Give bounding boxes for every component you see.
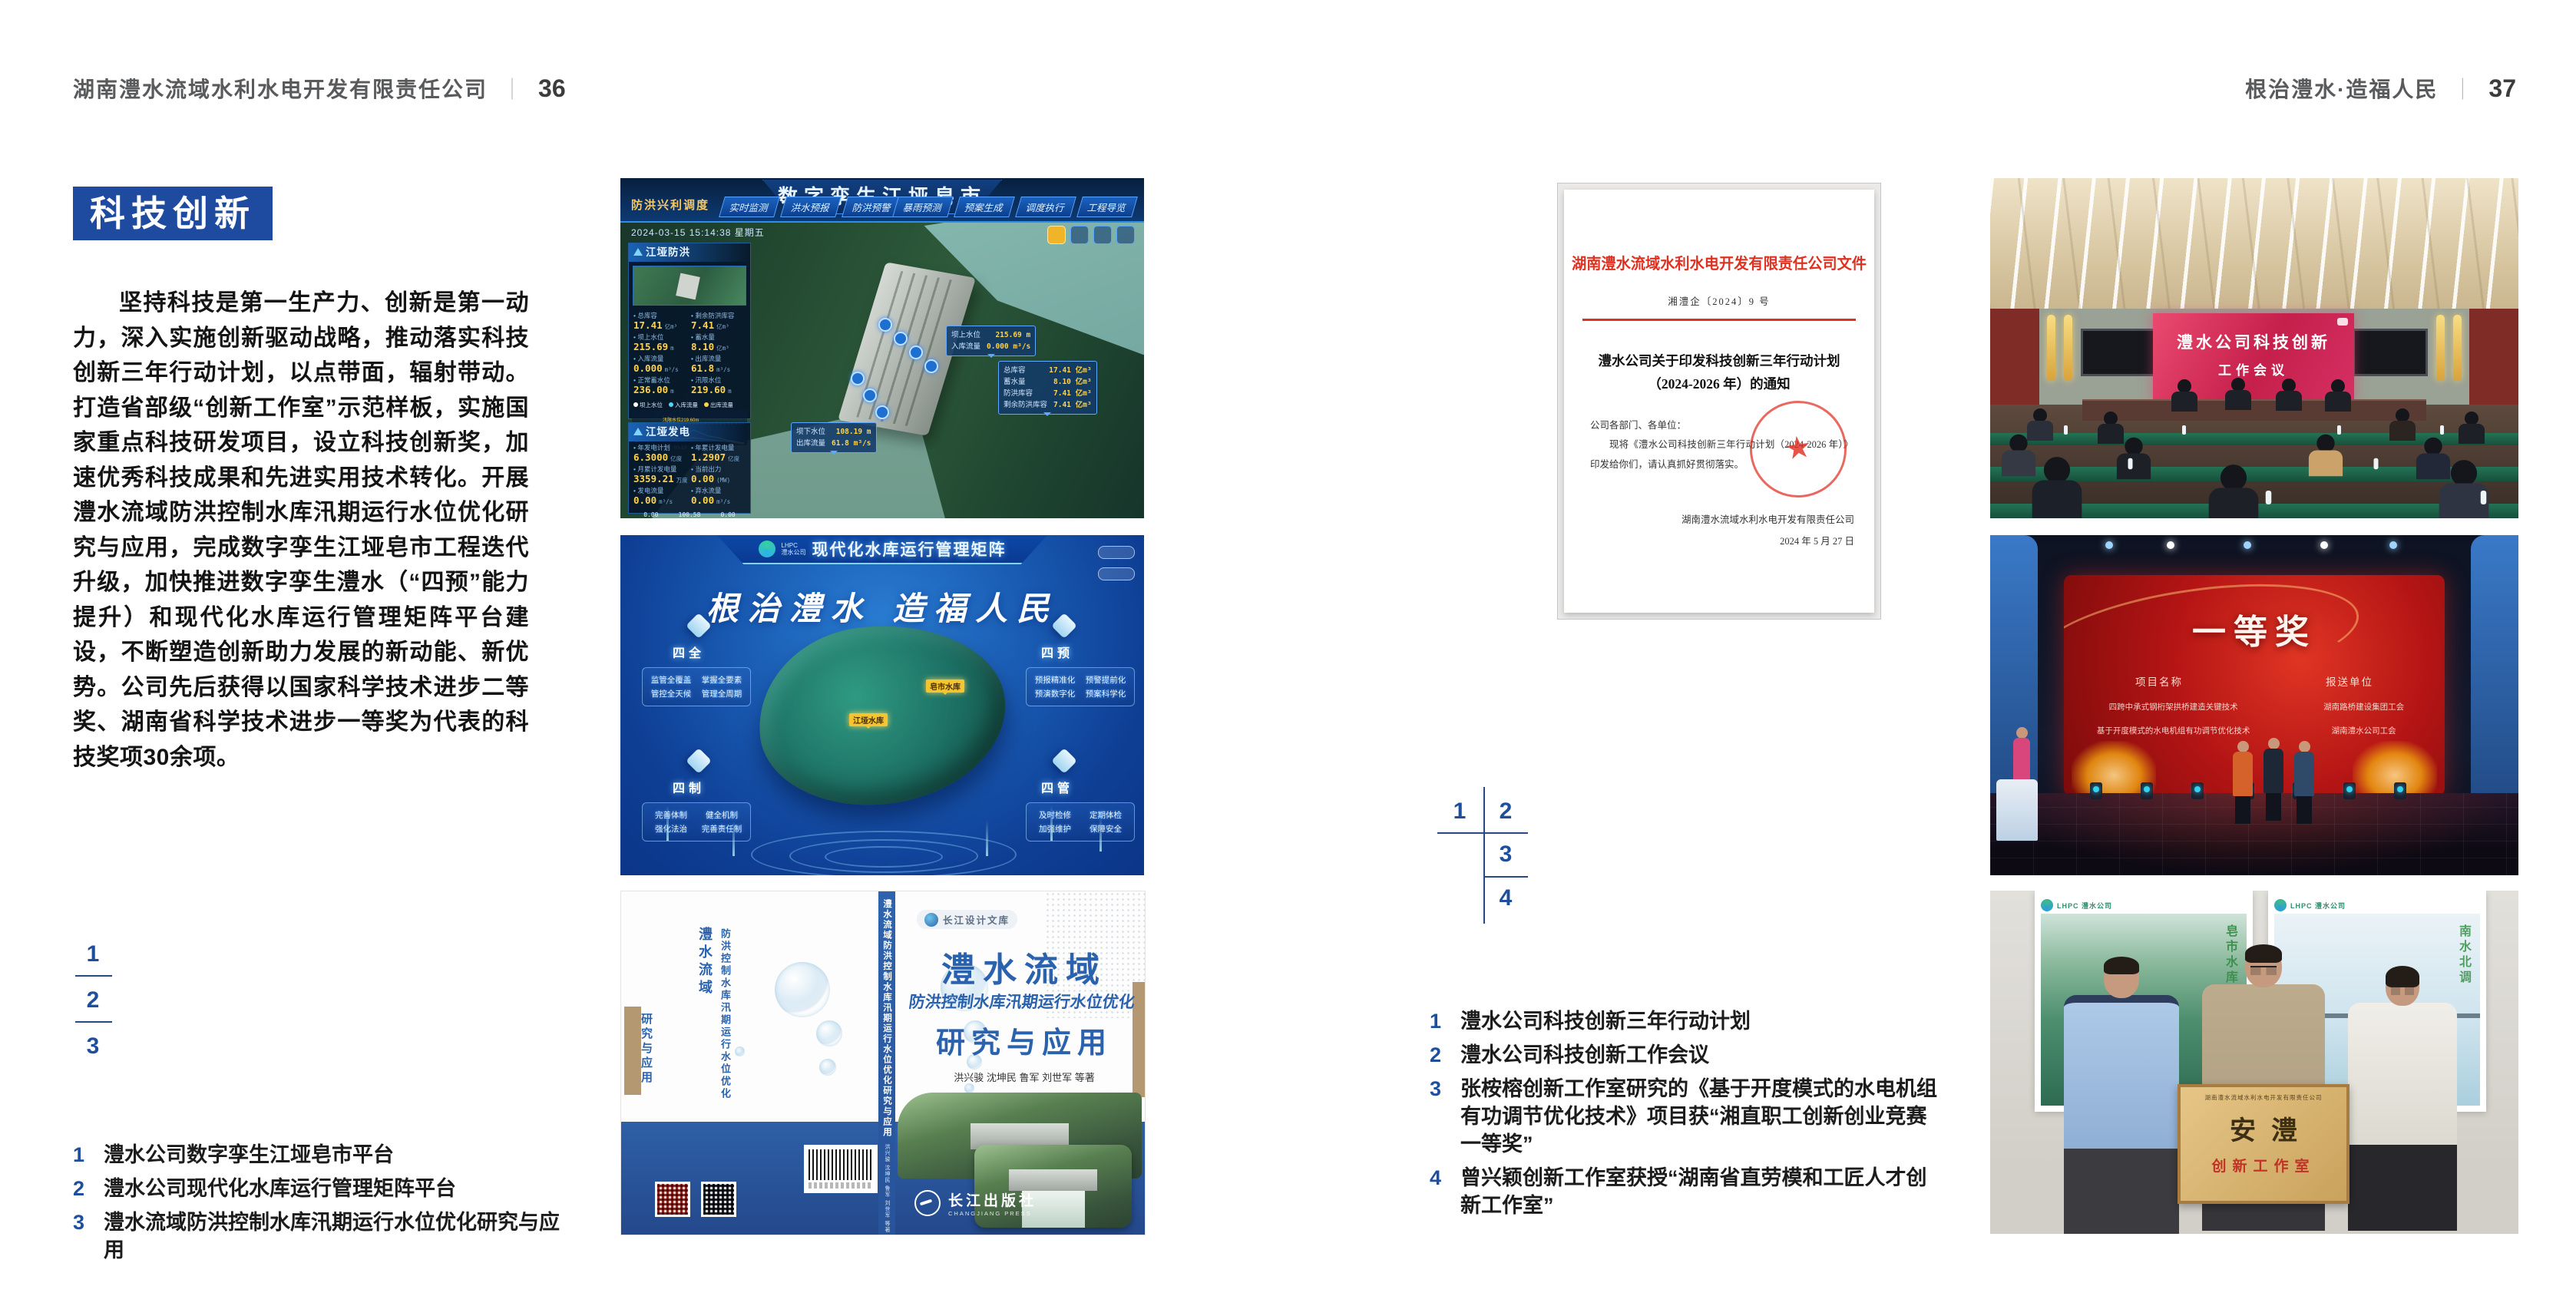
screen-title-line2: 工作会议 xyxy=(2153,359,2354,379)
stat-value: 8.10 xyxy=(691,341,714,352)
award-project: 四跨中承式钢桁架拱桥建造关键技术 xyxy=(2068,701,2278,713)
stat-unit: 亿度 xyxy=(670,455,682,462)
figure-marker-2: 2 xyxy=(81,987,104,1013)
stat-cell: 发电流量 0.00m³/s xyxy=(633,486,688,507)
stat-unit: 亿度 xyxy=(728,455,739,462)
document-signature: 湖南澧水流域水利水电开发有限责任公司 2024 年 5 月 27 日 xyxy=(1564,510,1874,552)
dashboard-tab[interactable]: 预案生成 xyxy=(954,197,1015,217)
changjiang-design-logo-icon xyxy=(924,913,938,927)
message-icon[interactable] xyxy=(1116,226,1135,244)
back-title-tail: 研究与应用 xyxy=(638,1013,654,1086)
stat-value: 0.00 xyxy=(691,494,714,506)
figure-marker-4: 4 xyxy=(1494,885,1517,911)
award-led-screen: 一等奖 项目名称 报送单位 四跨中承式钢桁架拱桥建造关键技术 湖南路桥建设集团工… xyxy=(2064,575,2445,796)
figure-management-matrix: LHPC澧水公司 现代化水库运行管理矩阵 根治澧水 造福人民 皂市水库 江垭水库… xyxy=(620,535,1144,875)
back-title-sub: 防洪控制水库汛期运行水位优化 xyxy=(718,928,732,1100)
tooltip-upstream: 坝上水位215.69 m入库流量0.000 m³/s xyxy=(946,326,1036,356)
card-item: 加强维护 xyxy=(1031,823,1079,835)
page-number-left: 36 xyxy=(538,74,566,102)
company-name: 湖南澧水流域水利水电开发有限责任公司 xyxy=(73,78,488,101)
figure-marker-1: 1 xyxy=(1448,798,1471,825)
tooltip-capacity: 总库容17.41 亿m³蓄水量8.10 亿m³防洪库容7.41 亿m³剩余防洪库… xyxy=(998,361,1097,415)
qr-code-red xyxy=(655,1182,690,1217)
gauge-value: 0.00 xyxy=(717,511,739,518)
wall-lamp-icon xyxy=(2436,315,2445,381)
spine-title: 澧水流域防洪控制水库汛期运行水位优化研究与应用 xyxy=(881,899,893,1138)
caption-row: 1 澧水公司数字孪生江垭皂市平台 xyxy=(73,1141,580,1169)
book-spine: 澧水流域防洪控制水库汛期运行水位优化研究与应用 洪兴骏 沈坤民 鲁军 刘世军 等… xyxy=(878,891,895,1235)
caption-row: 3 张桉榕创新工作室研究的《基于开度模式的水电机组有功调节优化技术》项目获“湘直… xyxy=(1430,1075,1940,1158)
figure-marker-2: 2 xyxy=(1494,798,1517,825)
stat-cell: 年发电计划 6.3000亿度 xyxy=(633,443,688,464)
company-logo-text: LHPC澧水公司 xyxy=(782,542,806,556)
stat-value: 0.000 xyxy=(633,362,663,374)
document-header: 湖南澧水流域水利水电开发有限责任公司文件 xyxy=(1570,251,1868,273)
stat-value: 219.60 xyxy=(691,384,726,395)
flood-panel-title: 江垭防洪 xyxy=(629,243,750,262)
document-page: 湖南澧水流域水利水电开发有限责任公司文件 湘澧企〔2024〕9 号 澧水公司关于… xyxy=(1564,190,1874,613)
stat-value: 17.41 xyxy=(633,319,663,331)
dashboard-tab[interactable]: 调度执行 xyxy=(1015,197,1076,217)
column-org: 报送单位 xyxy=(2326,673,2373,689)
lhpc-logo-icon xyxy=(2041,899,2053,911)
stat-value: 0.00 xyxy=(691,473,714,484)
stat-value: 6.3000 xyxy=(633,451,668,463)
stat-value: 7.41 xyxy=(691,319,714,331)
document-red-rule xyxy=(1582,319,1856,321)
stat-cell: 蓄水量 8.10亿m³ xyxy=(691,332,746,353)
dashboard-tabs-left: 防洪兴利调度 xyxy=(631,197,709,213)
dashboard-tab[interactable]: 实时监测 xyxy=(719,197,780,217)
card-item: 强化法治 xyxy=(647,823,695,835)
figure-award-ceremony-photo: 一等奖 项目名称 报送单位 四跨中承式钢桁架拱桥建造关键技术 湖南路桥建设集团工… xyxy=(1990,535,2518,875)
company-logo-icon xyxy=(759,541,775,557)
official-seal-icon: ★ xyxy=(1744,395,1853,504)
mode-label: 防洪兴利调度 xyxy=(631,197,709,213)
lhpc-logo-icon xyxy=(2274,899,2287,911)
stat-value: 61.8 xyxy=(691,362,714,374)
power-panel: 江垭发电 年发电计划 6.3000亿度 年累计发电量 1.2907亿度 月累计发… xyxy=(628,422,751,514)
stage-floor xyxy=(1990,793,2518,875)
poster-logo: LHPC 澧水公司 xyxy=(2041,897,2247,914)
stat-value: 236.00 xyxy=(633,384,668,395)
stat-unit: 万度 xyxy=(676,477,688,484)
caption-number: 2 xyxy=(1430,1041,1460,1069)
card-title-yu: 四预 xyxy=(1041,643,1073,661)
generator-gauge: 100.58 2号机组 xyxy=(679,511,701,518)
card-item: 完善体制 xyxy=(647,809,695,821)
isbn-barcode xyxy=(804,1145,878,1193)
card-item: 管理全周期 xyxy=(698,688,746,699)
user-icon[interactable] xyxy=(1047,226,1066,244)
front-title-sub: 防洪控制水库汛期运行水位优化 xyxy=(902,990,1142,1013)
caption-number: 4 xyxy=(1430,1164,1460,1219)
stat-unit: m³/s xyxy=(716,366,730,373)
stat-unit: m³/s xyxy=(716,498,730,505)
stat-unit: m xyxy=(670,345,674,352)
stat-cell: 月累计发电量 3359.21万度 xyxy=(633,465,688,485)
card-title-zhi: 四制 xyxy=(673,778,705,796)
header-divider: ｜ xyxy=(488,78,538,101)
caption-row: 4 曾兴颖创新工作室获授“湖南省直劳模和工匠人才创新工作室” xyxy=(1430,1164,1940,1219)
dashboard-tab-group-left: 实时监测洪水预报防洪预警 xyxy=(722,197,900,217)
dashboard-tab[interactable]: 洪水预报 xyxy=(780,197,842,217)
dashboard-top-bar: 数字孪生江垭皂市 防洪兴利调度 实时监测洪水预报防洪预警 暴雨预测预案生成调度执… xyxy=(620,178,1144,223)
caption-row: 1 澧水公司科技创新三年行动计划 xyxy=(1430,1007,1940,1035)
dashboard-tab-group-right: 暴雨预测预案生成调度执行工程导览 xyxy=(895,197,1135,217)
poster-logo: LHPC 澧水公司 xyxy=(2274,897,2480,914)
dashboard-tab[interactable]: 工程导览 xyxy=(1076,197,1138,217)
caption-number: 3 xyxy=(73,1208,104,1264)
left-page-header: 湖南澧水流域水利水电开发有限责任公司｜36 xyxy=(73,73,566,104)
stat-cell: 坝上水位 215.69m xyxy=(633,332,688,353)
stat-cell: 汛限水位 219.60m xyxy=(691,375,746,396)
card-item: 预报精准化 xyxy=(1031,674,1079,686)
gauge-value: 100.58 xyxy=(679,511,701,518)
caption-text: 澧水公司现代化水库运行管理矩阵平台 xyxy=(104,1175,456,1202)
host-podium xyxy=(1996,779,2038,841)
award-org: 湖南路桥建设集团工会 xyxy=(2287,701,2439,713)
stat-unit: m³/s xyxy=(665,366,679,373)
dashboard-tab[interactable]: 暴雨预测 xyxy=(892,197,954,217)
spine-authors: 洪兴骏 沈坤民 鲁军 刘世军 等著 xyxy=(883,1144,891,1233)
plaque-title: 安澧 xyxy=(2181,1109,2346,1147)
wall-lamp-icon xyxy=(2047,315,2055,381)
plaque-subtitle: 创新工作室 xyxy=(2181,1155,2346,1175)
layers-icon[interactable] xyxy=(1070,226,1089,244)
wall-column-right xyxy=(2469,309,2518,405)
figure-official-document: 湖南澧水流域水利水电开发有限责任公司文件 湘澧企〔2024〕9 号 澧水公司关于… xyxy=(1557,183,1881,620)
card-item: 预演数字化 xyxy=(1031,688,1079,699)
figure-marker-1: 1 xyxy=(81,941,104,967)
wall-lamp-icon xyxy=(2453,315,2462,381)
generator-gauge: 0.00 1号机组 xyxy=(640,511,662,518)
generator-gauges: 0.00 1号机组 100.58 2号机组 0.00 3号机组 xyxy=(629,510,750,518)
publisher-logo-icon xyxy=(914,1190,941,1216)
card-item: 预警提前化 xyxy=(1082,674,1129,686)
award-rows: 四跨中承式钢桁架拱桥建造关键技术 湖南路桥建设集团工会 基于开度模式的水电机组有… xyxy=(2064,701,2445,736)
power-panel-title: 江垭发电 xyxy=(629,423,750,441)
chart-legend: 坝上水位 入库流量 出库流量 xyxy=(629,399,750,409)
series-name: 长江设计文库 xyxy=(943,912,1010,927)
flood-stats: 总库容 17.41亿m³ 剩余防洪库容 7.41亿m³ 坝上水位 215.69m xyxy=(629,309,750,399)
caption-text: 张桉榕创新工作室研究的《基于开度模式的水电机组有功调节优化技术》项目获“湘直职工… xyxy=(1460,1075,1940,1158)
wall-column-left xyxy=(1990,309,2039,405)
matrix-title: 现代化水库运行管理矩阵 xyxy=(812,537,1007,560)
caption-number: 2 xyxy=(73,1175,104,1202)
card-item: 健全机制 xyxy=(698,809,746,821)
card-item: 监管全覆盖 xyxy=(647,674,695,686)
figure-marker-3: 3 xyxy=(1494,841,1517,868)
stat-cell: 弃水流量 0.00m³/s xyxy=(691,486,746,507)
front-title-tail: 研究与应用 xyxy=(921,1019,1128,1061)
card-item: 及时检修 xyxy=(1031,809,1079,821)
award-row: 基于开度模式的水电机组有功调节优化技术 湖南澧水公司工会 xyxy=(2064,725,2445,736)
gauge-value: 0.00 xyxy=(640,511,662,518)
screen-title-line1: 澧水公司科技创新 xyxy=(2153,330,2354,353)
matrix-button-top[interactable] xyxy=(1098,546,1135,559)
award-row: 四跨中承式钢桁架拱桥建造关键技术 湖南路桥建设集团工会 xyxy=(2064,701,2445,713)
caption-number: 3 xyxy=(1430,1075,1460,1158)
head-table xyxy=(2082,399,2426,421)
right-page-header: 根治澧水·造福人民｜37 xyxy=(2245,73,2516,104)
front-title-main: 澧水流域 xyxy=(921,942,1128,991)
stat-cell: 入库流量 0.000m³/s xyxy=(633,354,688,375)
caption-text: 曾兴颖创新工作室获授“湖南省直劳模和工匠人才创新工作室” xyxy=(1460,1164,1940,1219)
stat-cell: 当前出力 0.00(MW) xyxy=(691,465,746,485)
stat-value: 0.00 xyxy=(633,494,656,506)
card-item: 完善责任制 xyxy=(698,823,746,835)
figure-marker-vline xyxy=(1483,787,1485,924)
document-date: 2024 年 5 月 27 日 xyxy=(1564,531,1854,553)
dashboard-datetime: 2024-03-15 15:14:38 星期五 xyxy=(631,226,765,239)
plaque-org-line: 湖南澧水流域水利水电开发有限责任公司 xyxy=(2181,1093,2346,1102)
poster-logo-text: LHPC 澧水公司 xyxy=(2290,901,2346,911)
figure-marker-3: 3 xyxy=(81,1033,104,1060)
figure-marker-hline xyxy=(1484,876,1528,878)
slogan-text: 根治澧水·造福人民 xyxy=(2245,78,2438,101)
stat-unit: 亿m³ xyxy=(716,345,729,352)
document-title: 澧水公司关于印发科技创新三年行动计划 （2024-2026 年）的通知 xyxy=(1564,350,1874,396)
caption-text: 澧水公司科技创新三年行动计划 xyxy=(1460,1007,1751,1035)
figure-digital-twin-dashboard: 数字孪生江垭皂市 防洪兴利调度 实时监测洪水预报防洪预警 暴雨预测预案生成调度执… xyxy=(620,178,1144,518)
publisher-block: 长江出版社 CHANGJIANG PRESS xyxy=(914,1189,1037,1217)
stat-value: 3359.21 xyxy=(633,473,674,484)
back-title-main: 澧水流域 xyxy=(695,927,715,997)
caption-row: 2 澧水公司现代化水库运行管理矩阵平台 xyxy=(73,1175,580,1202)
map-marker-jiangya[interactable]: 江垭水库 xyxy=(849,713,888,726)
stat-unit: m xyxy=(728,388,732,395)
card-item: 掌握全要素 xyxy=(698,674,746,686)
figure-studio-plaque-photo: LHPC 澧水公司 皂市水库 LHPC 澧水公司 南水北调 xyxy=(1990,891,2518,1234)
right-caption-list: 1 澧水公司科技创新三年行动计划 2 澧水公司科技创新工作会议 3 张桉榕创新工… xyxy=(1430,1007,1940,1225)
wall-lamp-icon xyxy=(2064,315,2072,381)
card-guan: 及时检修定期体检加强维护保障安全 xyxy=(1026,802,1135,841)
meeting-ceiling xyxy=(1990,178,2518,320)
card-item: 定期体检 xyxy=(1082,809,1129,821)
wall-tv-right xyxy=(2353,329,2428,376)
header-divider: ｜ xyxy=(2438,78,2488,101)
left-caption-list: 1 澧水公司数字孪生江垭皂市平台 2 澧水公司现代化水库运行管理矩阵平台 3 澧… xyxy=(73,1141,580,1270)
qr-code-black xyxy=(701,1182,736,1217)
card-yu: 预报精准化预警提前化预演数字化预案科学化 xyxy=(1026,667,1135,706)
card-item: 预案科学化 xyxy=(1082,688,1129,699)
stat-value: 1.2907 xyxy=(691,451,726,463)
locate-icon[interactable] xyxy=(1093,226,1112,244)
stat-cell: 出库流量 61.8m³/s xyxy=(691,354,746,375)
screen-logo-icon xyxy=(2337,318,2348,326)
stat-cell: 剩余防洪库容 7.41亿m³ xyxy=(691,311,746,332)
stat-cell: 总库容 17.41亿m³ xyxy=(633,311,688,332)
flood-panel: 江垭防洪 总库容 17.41亿m³ 剩余防洪库容 7.41亿m³ 坝上水位 xyxy=(628,243,751,419)
figure-marker-divider xyxy=(75,975,112,977)
wall-tv-left xyxy=(2081,329,2156,376)
caption-text: 澧水公司科技创新工作会议 xyxy=(1460,1041,1709,1069)
map-marker-zaoshi[interactable]: 皂市水库 xyxy=(926,679,964,693)
series-badge: 长江设计文库 xyxy=(917,910,1017,929)
caption-number: 1 xyxy=(73,1141,104,1169)
publisher-name-en: CHANGJIANG PRESS xyxy=(948,1210,1037,1217)
card-item: 管控全天候 xyxy=(647,688,695,699)
tooltip-downstream: 坝下水位108.19 m出库流量61.8 m³/s xyxy=(791,422,877,453)
card-title-quan: 四全 xyxy=(673,643,705,661)
caption-row: 2 澧水公司科技创新工作会议 xyxy=(1430,1041,1940,1069)
stat-cell: 正常蓄水位 236.00m xyxy=(633,375,688,396)
brochure-spread: 湖南澧水流域水利水电开发有限责任公司｜36 科技创新 坚持科技是第一生产力、创新… xyxy=(0,0,2576,1306)
stat-unit: 亿m³ xyxy=(716,323,729,330)
caption-row: 3 澧水流域防洪控制水库汛期运行水位优化研究与应用 xyxy=(73,1208,580,1264)
dam-thumbnail xyxy=(633,266,746,306)
authors-line: 洪兴骏 沈坤民 鲁军 刘世军 等著 xyxy=(921,1070,1128,1084)
award-project: 基于开度模式的水电机组有功调节优化技术 xyxy=(2068,725,2278,736)
generator-gauge: 0.00 3号机组 xyxy=(717,511,739,518)
figure-book-cover: 澧水流域 防洪控制水库汛期运行水位优化 研究与应用 澧水流域防洪控制水库汛期运行… xyxy=(620,891,1146,1235)
publisher-name: 长江出版社 xyxy=(948,1189,1037,1210)
stat-unit: (MW) xyxy=(716,477,730,484)
stat-unit: m³/s xyxy=(659,498,673,505)
innovation-studio-plaque: 湖南澧水流域水利水电开发有限责任公司 安澧 创新工作室 xyxy=(2178,1084,2349,1204)
person-right xyxy=(2348,967,2457,1231)
matrix-button-bottom[interactable] xyxy=(1098,567,1135,580)
page-number-right: 37 xyxy=(2488,74,2516,102)
dashboard-toolbar-icons xyxy=(1047,226,1135,244)
matrix-header: LHPC澧水公司 现代化水库运行管理矩阵 xyxy=(717,535,1047,564)
power-stats: 年发电计划 6.3000亿度 年累计发电量 1.2907亿度 月累计发电量 33… xyxy=(629,441,750,510)
card-item: 保障安全 xyxy=(1082,823,1129,835)
document-signer: 湖南澧水流域水利水电开发有限责任公司 xyxy=(1564,510,1854,531)
card-title-guan: 四管 xyxy=(1041,778,1073,796)
stat-unit: 亿m³ xyxy=(665,323,678,330)
caption-text: 澧水流域防洪控制水库汛期运行水位优化研究与应用 xyxy=(104,1208,580,1264)
card-quan: 监管全覆盖掌握全要素管控全天候管理全周期 xyxy=(642,667,751,706)
award-org: 湖南澧水公司工会 xyxy=(2287,725,2439,736)
document-number: 湘澧企〔2024〕9 号 xyxy=(1564,293,1874,308)
caption-text: 澧水公司数字孪生江垭皂市平台 xyxy=(104,1141,394,1169)
stat-unit: m xyxy=(670,388,674,395)
stat-cell: 年累计发电量 1.2907亿度 xyxy=(691,443,746,464)
person-left xyxy=(2064,958,2179,1234)
figure-meeting-photo: 澧水公司科技创新 工作会议 xyxy=(1990,178,2518,518)
stat-value: 215.69 xyxy=(633,341,668,352)
caption-number: 1 xyxy=(1430,1007,1460,1035)
figure-marker-hline xyxy=(1437,832,1528,834)
poster-logo-text: LHPC 澧水公司 xyxy=(2057,901,2112,911)
section-body-text: 坚持科技是第一生产力、创新是第一动力，深入实施创新驱动战略，推动落实科技创新三年… xyxy=(73,286,529,775)
figure-marker-divider xyxy=(75,1021,112,1023)
section-title-badge: 科技创新 xyxy=(73,187,273,240)
